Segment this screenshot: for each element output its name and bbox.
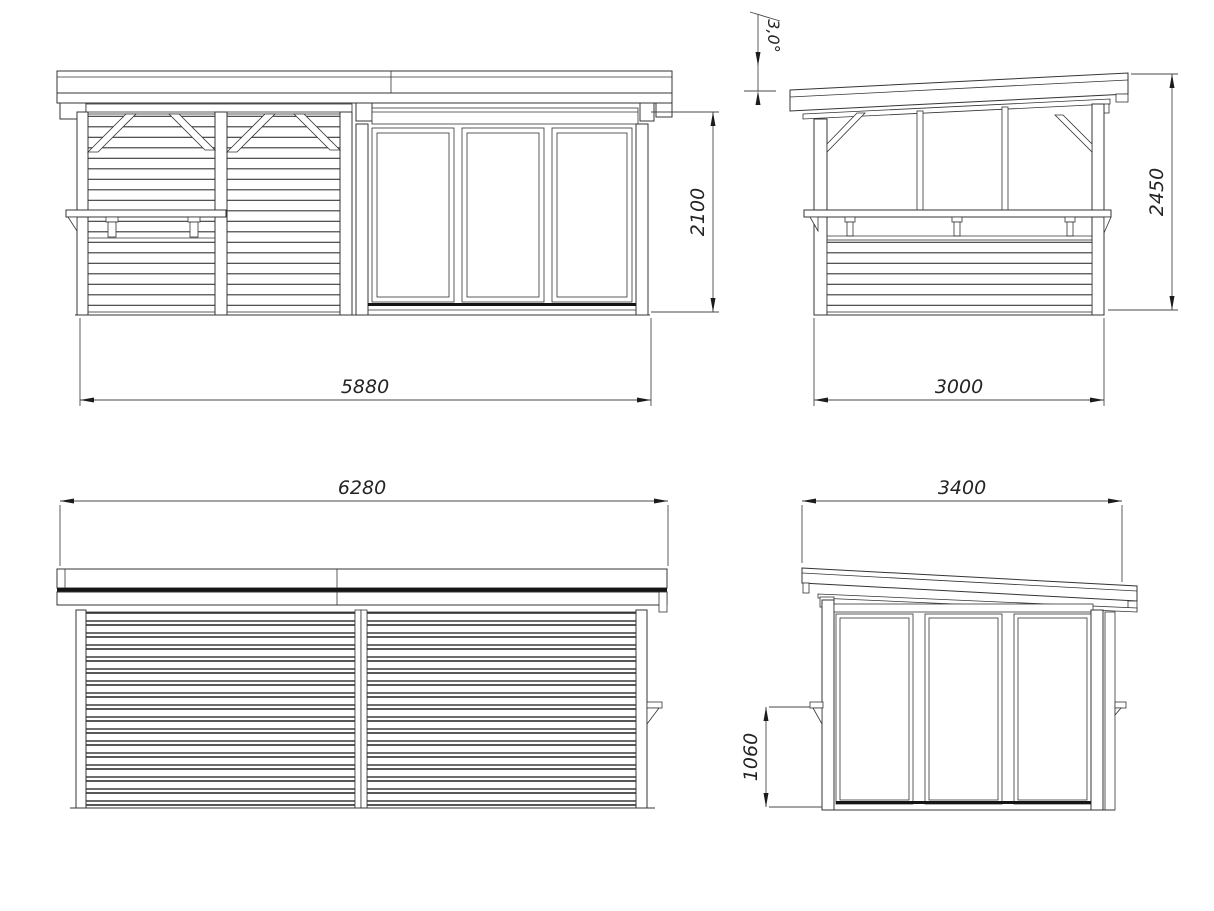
- side-b-glazed-wall: [822, 600, 1115, 810]
- side-b-counter-height-label: 1060: [740, 733, 762, 781]
- side-a-height-label: 2450: [1146, 168, 1168, 216]
- front-width-label: 5880: [341, 376, 389, 398]
- rear-plank-wall: [76, 610, 647, 808]
- front-height-label: 2100: [687, 188, 709, 236]
- side-b-depth-label: 3400: [938, 477, 986, 499]
- side-a-plank-wall: [827, 240, 1092, 312]
- technical-drawing: 5880 2100: [0, 0, 1214, 911]
- side-a-roof-angle-label: 3,0°: [764, 19, 783, 52]
- front-glazed-doors: [356, 124, 648, 315]
- rear-width-label: 6280: [338, 477, 386, 499]
- drawing-sheet: 5880 2100: [0, 0, 1214, 911]
- side-a-depth-label: 3000: [935, 376, 983, 398]
